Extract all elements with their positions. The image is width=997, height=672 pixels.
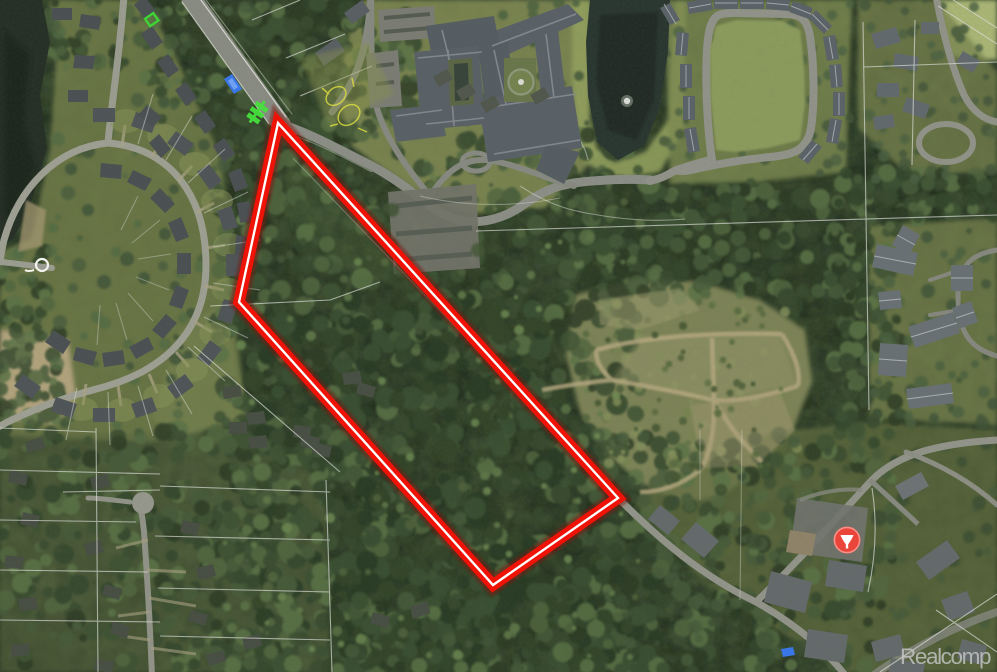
svg-text:Realcomp: Realcomp: [900, 644, 991, 669]
